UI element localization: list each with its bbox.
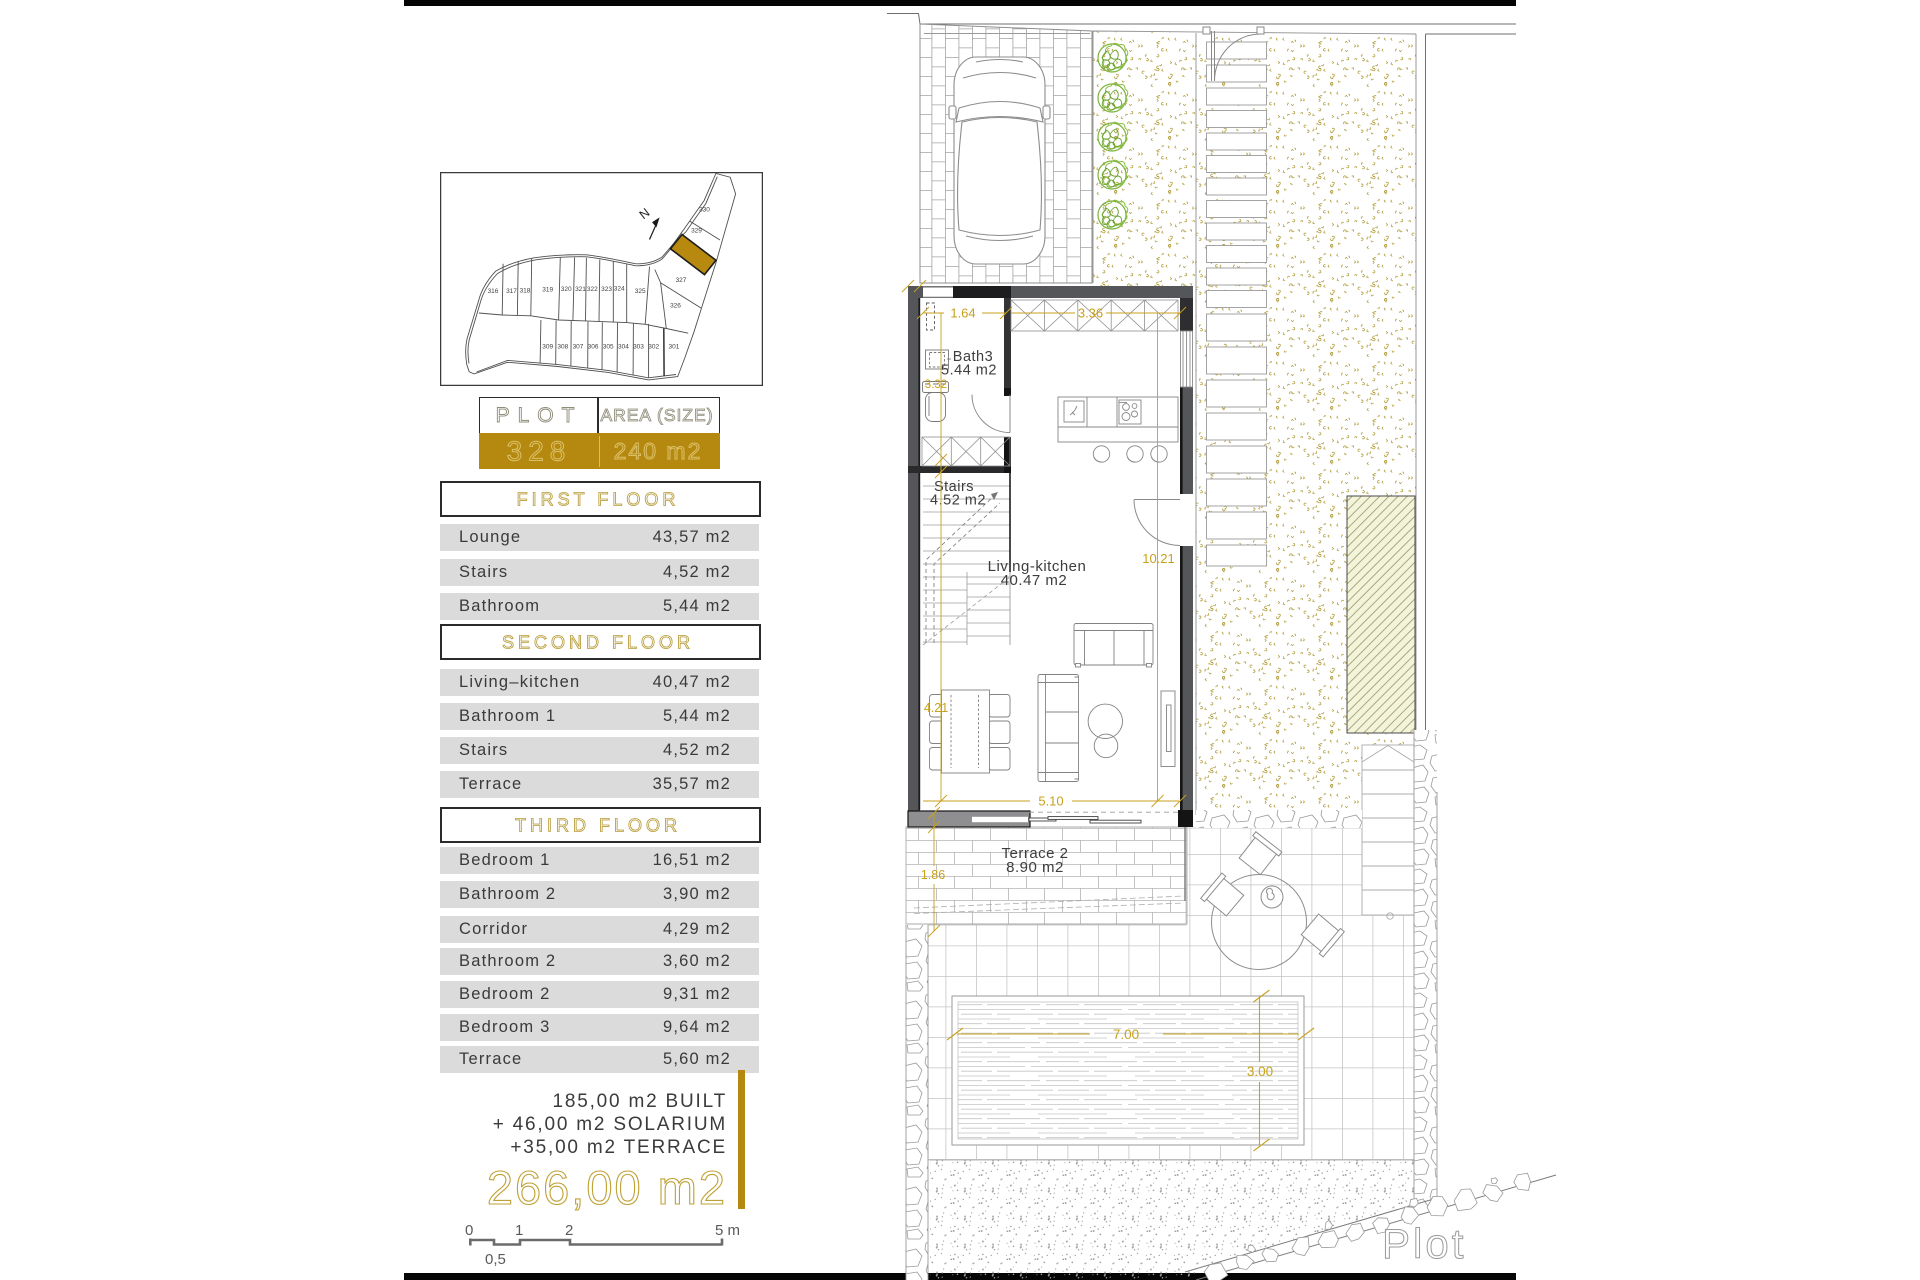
svg-text:1.86: 1.86 [921,868,945,882]
svg-text:308: 308 [557,344,568,351]
svg-text:303: 303 [633,344,644,351]
svg-text:3.00: 3.00 [1247,1064,1273,1079]
svg-text:304: 304 [618,344,629,351]
svg-text:10.21: 10.21 [1142,551,1175,566]
svg-text:PLOT: PLOT [496,404,583,427]
svg-text:301: 301 [668,344,679,351]
svg-text:325: 325 [635,288,646,295]
svg-text:1.64: 1.64 [950,306,975,321]
svg-text:AREA (SIZE): AREA (SIZE) [600,405,713,425]
svg-text:3.36: 3.36 [1078,306,1103,321]
svg-text:5.44 m2: 5.44 m2 [941,363,997,379]
svg-text:329: 329 [691,228,702,235]
svg-text:321: 321 [575,286,586,293]
svg-text:309: 309 [542,344,553,351]
svg-text:320: 320 [561,286,572,293]
svg-text:322: 322 [587,286,598,293]
svg-text:3.32: 3.32 [925,379,947,391]
svg-text:302: 302 [648,344,659,351]
svg-text:5.10: 5.10 [1038,794,1063,809]
svg-text:318: 318 [520,288,531,295]
svg-text:266,00 m2: 266,00 m2 [487,1161,727,1214]
svg-text:1: 1 [515,1222,523,1239]
svg-text:SECOND FLOOR: SECOND FLOOR [502,633,694,653]
svg-text:FIRST FLOOR: FIRST FLOOR [517,490,680,510]
svg-text:305: 305 [603,344,614,351]
svg-text:0,5: 0,5 [485,1251,506,1268]
svg-text:7.00: 7.00 [1113,1027,1139,1042]
svg-text:4.21: 4.21 [924,701,948,715]
svg-text:40.47 m2: 40.47 m2 [1001,572,1068,589]
svg-text:319: 319 [542,287,553,294]
svg-text:N: N [637,205,653,222]
svg-text:THIRD FLOOR: THIRD FLOOR [515,816,681,836]
svg-text:323: 323 [601,286,612,293]
svg-text:5 m: 5 m [715,1222,740,1239]
svg-text:316: 316 [488,288,499,295]
svg-text:327: 327 [676,277,687,284]
svg-text:4.52 m2: 4.52 m2 [930,493,986,509]
svg-text:240 m2: 240 m2 [614,438,703,464]
svg-text:328: 328 [507,436,572,467]
svg-text:2: 2 [565,1222,573,1239]
svg-text:Plot: Plot [1382,1220,1466,1267]
svg-text:330: 330 [699,207,710,214]
svg-text:306: 306 [588,344,599,351]
svg-text:8.90 m2: 8.90 m2 [1006,859,1064,876]
svg-text:326: 326 [670,303,681,310]
svg-text:307: 307 [573,344,584,351]
svg-text:0: 0 [465,1222,473,1239]
svg-text:317: 317 [506,288,517,295]
svg-text:324: 324 [614,285,625,292]
